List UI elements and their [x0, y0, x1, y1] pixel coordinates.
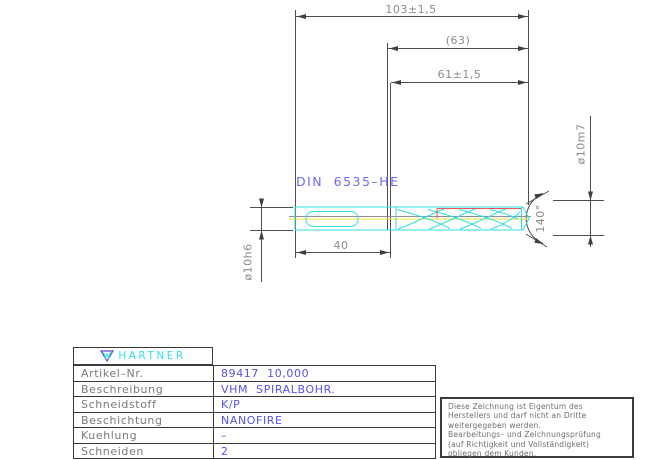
table-row: Beschreibung VHM SPIRALBOHR.: [74, 381, 435, 397]
row-value: VHM SPIRALBOHR.: [213, 382, 435, 397]
dim-shank-diameter: ø10h6: [242, 243, 255, 280]
dim-overall-length: 103±1,5: [385, 3, 436, 16]
dim-shank-length: 40: [334, 239, 349, 252]
shank-standard-label: DIN 6535–HE: [296, 174, 400, 189]
centerlines: [289, 217, 531, 220]
table-row: Schneiden 2: [74, 443, 435, 459]
note-line: weitergegeben werden.: [448, 421, 628, 430]
note-line: (auf Richtigkeit und Vollständigkeit): [448, 440, 628, 449]
note-line: Diese Zeichnung ist Eigentum des: [448, 402, 628, 411]
dim-flute-length: 61±1,5: [438, 68, 482, 81]
drawing-sheet: 103±1,5 (63) 61±1,5 40 ø10m7 ø10h6 140° …: [0, 0, 670, 460]
table-row: Artikel–Nr. 89417 10,000: [74, 365, 435, 381]
table-row: Kuehlung –: [74, 427, 435, 443]
row-label: Kuehlung: [74, 428, 213, 443]
hartner-logo-icon: [100, 350, 114, 362]
dimension-lines: [250, 10, 604, 282]
row-value: NANOFIRE: [213, 413, 435, 428]
note-line: Herstellers und darf nicht an Dritte: [448, 411, 628, 420]
table-row: Schneidstoff K/P: [74, 396, 435, 412]
row-label: Artikel–Nr.: [74, 366, 213, 381]
table-row: Beschichtung NANOFIRE: [74, 412, 435, 428]
title-block-rows: Artikel–Nr. 89417 10,000 Beschreibung VH…: [73, 365, 436, 459]
brand-cell: HARTNER: [73, 347, 213, 365]
row-label: Schneidstoff: [74, 397, 213, 412]
row-value: 2: [213, 444, 435, 459]
row-label: Beschichtung: [74, 413, 213, 428]
ownership-note-box: Diese Zeichnung ist Eigentum des Herstel…: [440, 397, 634, 458]
drill-technical-drawing: 103±1,5 (63) 61±1,5 40 ø10m7 ø10h6 140° …: [0, 0, 670, 345]
brand-name: HARTNER: [118, 350, 185, 362]
row-label: Beschreibung: [74, 382, 213, 397]
dim-aux-length: (63): [446, 34, 471, 47]
dim-point-angle: 140°: [534, 204, 547, 233]
note-line: obliegen dem Kunden.: [448, 449, 628, 458]
row-value: K/P: [213, 397, 435, 412]
note-line: Bearbeitungs– und Zeichnungsprüfung: [448, 430, 628, 439]
row-value: –: [213, 428, 435, 443]
dim-cutting-diameter: ø10m7: [575, 124, 588, 165]
row-label: Schneiden: [74, 444, 213, 459]
title-block: HARTNER Artikel–Nr. 89417 10,000 Beschre…: [73, 347, 436, 459]
row-value: 89417 10,000: [213, 366, 435, 381]
